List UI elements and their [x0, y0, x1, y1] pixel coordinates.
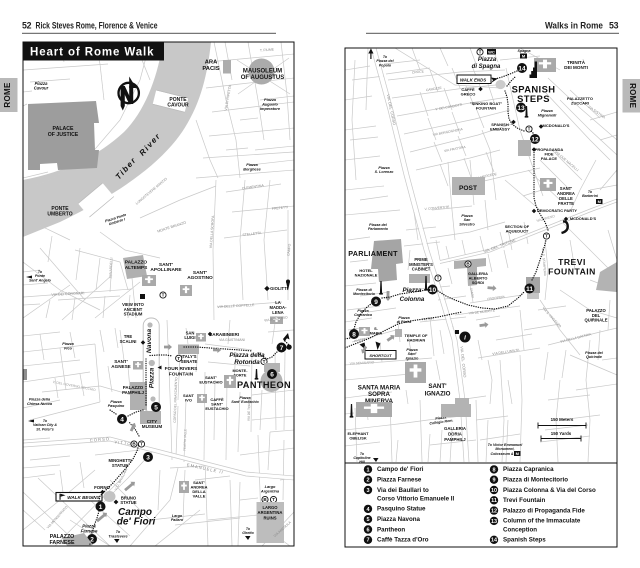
svg-text:ITALY'SSENATE: ITALY'SSENATE: [181, 354, 198, 364]
svg-text:6: 6: [270, 371, 274, 378]
svg-text:52: 52: [22, 20, 32, 30]
svg-text:Piazza: Piazza: [403, 287, 422, 294]
svg-text:CARABINIERI: CARABINIERI: [209, 332, 239, 337]
svg-text:IGNAZIO: IGNAZIO: [425, 391, 451, 398]
svg-text:7: 7: [280, 345, 284, 352]
svg-text:5: 5: [154, 404, 158, 411]
svg-text:150 Meters: 150 Meters: [551, 417, 574, 422]
svg-text:SANT'AGNESE: SANT'AGNESE: [111, 359, 130, 369]
svg-text:10: 10: [429, 287, 437, 294]
svg-text:PANTHEON: PANTHEON: [237, 380, 291, 390]
svg-text:SHORTCUT: SHORTCUT: [369, 353, 392, 358]
svg-text:MCDONALD'S: MCDONALD'S: [570, 216, 597, 221]
svg-text:BRUNOSTATUE: BRUNOSTATUE: [120, 496, 136, 506]
svg-text:Piazza Farnese: Piazza Farnese: [377, 477, 422, 484]
svg-text:Navona: Navona: [146, 329, 153, 353]
svg-text:8: 8: [492, 467, 495, 473]
svg-text:150 Yards: 150 Yards: [551, 431, 572, 436]
svg-text:8: 8: [352, 331, 356, 338]
svg-text:PONTECAVOUR: PONTECAVOUR: [167, 97, 189, 109]
svg-text:ROME: ROME: [3, 82, 12, 108]
svg-text:TEATRO VALLE: TEATRO VALLE: [183, 429, 188, 451]
svg-text:T: T: [272, 497, 275, 502]
svg-text:Piazza: Piazza: [149, 368, 156, 389]
svg-text:i: i: [464, 335, 466, 342]
svg-text:DEMOCRATIC PARTY: DEMOCRATIC PARTY: [537, 208, 577, 213]
svg-text:10: 10: [491, 488, 497, 494]
svg-text:T: T: [479, 50, 482, 55]
svg-text:SANLUIGI: SANLUIGI: [184, 331, 195, 341]
svg-text:Piazza di Montecitorio: Piazza di Montecitorio: [503, 477, 568, 484]
svg-text:14: 14: [491, 538, 498, 544]
svg-text:CAFFÈGRECO: CAFFÈGRECO: [461, 87, 476, 97]
svg-text:Walks in Rome: Walks in Rome: [545, 20, 603, 30]
svg-text:SANT': SANT': [428, 383, 447, 390]
svg-text:SPANISHEMBASSY: SPANISHEMBASSY: [490, 122, 510, 132]
svg-text:T: T: [162, 293, 165, 298]
svg-text:3: 3: [146, 454, 150, 461]
svg-text:Conception: Conception: [503, 526, 537, 533]
svg-text:T: T: [140, 442, 143, 447]
svg-text:Column of the Immaculate: Column of the Immaculate: [503, 518, 581, 525]
svg-text:Piazza: Piazza: [478, 57, 497, 63]
svg-text:VIA GIUSTINIANI: VIA GIUSTINIANI: [219, 338, 245, 342]
svg-text:Piazza Capranica: Piazza Capranica: [503, 466, 554, 473]
svg-text:Piazza dellaChiesa Nuova: Piazza dellaChiesa Nuova: [27, 398, 52, 406]
svg-text:ARAPACIS: ARAPACIS: [202, 60, 219, 73]
svg-text:Piazza delParlamento: Piazza delParlamento: [368, 223, 389, 231]
svg-text:3: 3: [366, 488, 369, 494]
svg-text:Piazza Navona: Piazza Navona: [377, 516, 421, 523]
svg-text:TRINITÀDEI MONTI: TRINITÀDEI MONTI: [564, 59, 588, 70]
svg-text:Caffè Tazza d'Oro: Caffè Tazza d'Oro: [377, 537, 429, 544]
svg-text:di Spagna: di Spagna: [472, 64, 501, 70]
svg-text:PALAZZOFARNESE: PALAZZOFARNESE: [49, 534, 74, 546]
svg-text:PiazzaFarnese: PiazzaFarnese: [81, 524, 98, 534]
svg-text:Piazza Colonna & Via del Corso: Piazza Colonna & Via del Corso: [503, 487, 596, 494]
svg-text:Rick Steves Rome, Florence & V: Rick Steves Rome, Florence & Venice: [36, 20, 158, 30]
svg-text:Corso Vittorio Emanuele II: Corso Vittorio Emanuele II: [377, 495, 455, 502]
svg-text:ROME: ROME: [628, 83, 637, 109]
svg-text:11: 11: [491, 498, 497, 504]
svg-text:Via dei Baullari to: Via dei Baullari to: [377, 487, 429, 494]
svg-text:Colonna: Colonna: [400, 296, 425, 303]
svg-text:53: 53: [609, 20, 619, 30]
svg-text:PARLIAMENT: PARLIAMENT: [348, 249, 398, 258]
svg-text:ELEPHANTOBELISK: ELEPHANTOBELISK: [348, 431, 370, 440]
svg-text:POST: POST: [459, 185, 477, 192]
svg-text:Campo de' Fiori: Campo de' Fiori: [377, 466, 424, 473]
svg-text:T: T: [177, 356, 180, 361]
svg-text:LargoPallaro: LargoPallaro: [171, 514, 184, 522]
svg-text:WALK ENDS: WALK ENDS: [460, 78, 486, 83]
svg-text:PALAZZOPAMPHILJ: PALAZZOPAMPHILJ: [122, 385, 144, 395]
svg-text:Pantheon: Pantheon: [377, 526, 405, 533]
svg-text:13: 13: [491, 519, 497, 525]
svg-text:FOUR RIVERSFOUNTAIN: FOUR RIVERSFOUNTAIN: [165, 366, 199, 377]
svg-text:WC: WC: [488, 49, 495, 54]
svg-text:MCDONALD'S: MCDONALD'S: [543, 123, 570, 128]
svg-text:MAUSOLEUMOF AUGUSTUS: MAUSOLEUMOF AUGUSTUS: [241, 69, 284, 82]
svg-text:WALK BEGINS: WALK BEGINS: [67, 495, 100, 500]
svg-text:12: 12: [491, 509, 497, 515]
svg-text:TREVI: TREVI: [558, 257, 586, 267]
svg-text:5: 5: [366, 517, 369, 523]
svg-text:14: 14: [518, 65, 526, 72]
svg-text:9: 9: [492, 478, 495, 484]
svg-text:13: 13: [517, 105, 525, 112]
svg-text:Trevi Fountain: Trevi Fountain: [503, 497, 546, 504]
svg-text:Colosseum &: Colosseum &: [491, 452, 514, 456]
svg-text:GIOLITTI: GIOLITTI: [270, 286, 288, 291]
svg-text:6: 6: [366, 527, 369, 533]
svg-text:T: T: [528, 127, 531, 132]
svg-text:Heart of Rome Walk: Heart of Rome Walk: [30, 47, 154, 59]
svg-text:Piazza delQuirinale: Piazza delQuirinale: [585, 351, 604, 359]
svg-text:Spanish Steps: Spanish Steps: [503, 537, 546, 544]
svg-text:1: 1: [366, 467, 369, 473]
svg-text:PALAZZOALTEMPS: PALAZZOALTEMPS: [125, 260, 148, 271]
svg-text:VIA DE TORRE: VIA DE TORRE: [247, 399, 252, 421]
svg-text:PiazzaCavour: PiazzaCavour: [34, 81, 49, 90]
svg-text:VIEW INTOANCIENTSTADIUM: VIEW INTOANCIENTSTADIUM: [122, 302, 145, 317]
svg-text:TEMPLE OFHADRIAN: TEMPLE OFHADRIAN: [405, 333, 428, 343]
svg-text:Palazzo di Propaganda Fide: Palazzo di Propaganda Fide: [503, 507, 585, 514]
svg-text:de' Fiori: de' Fiori: [117, 517, 156, 528]
svg-text:12: 12: [531, 136, 539, 143]
svg-text:4: 4: [120, 416, 124, 423]
svg-text:9: 9: [374, 299, 378, 306]
svg-text:Pasquino Statue: Pasquino Statue: [377, 506, 426, 513]
svg-text:11: 11: [526, 286, 533, 293]
svg-text:T: T: [545, 234, 548, 239]
svg-text:2: 2: [366, 478, 369, 484]
svg-text:FOUNTAIN: FOUNTAIN: [548, 267, 596, 277]
svg-text:1: 1: [99, 504, 103, 511]
svg-text:STEPS: STEPS: [517, 93, 550, 104]
svg-text:7: 7: [366, 538, 369, 544]
svg-text:T: T: [437, 276, 440, 281]
svg-text:SECTION OFAQUEDUCT: SECTION OFAQUEDUCT: [505, 224, 530, 234]
